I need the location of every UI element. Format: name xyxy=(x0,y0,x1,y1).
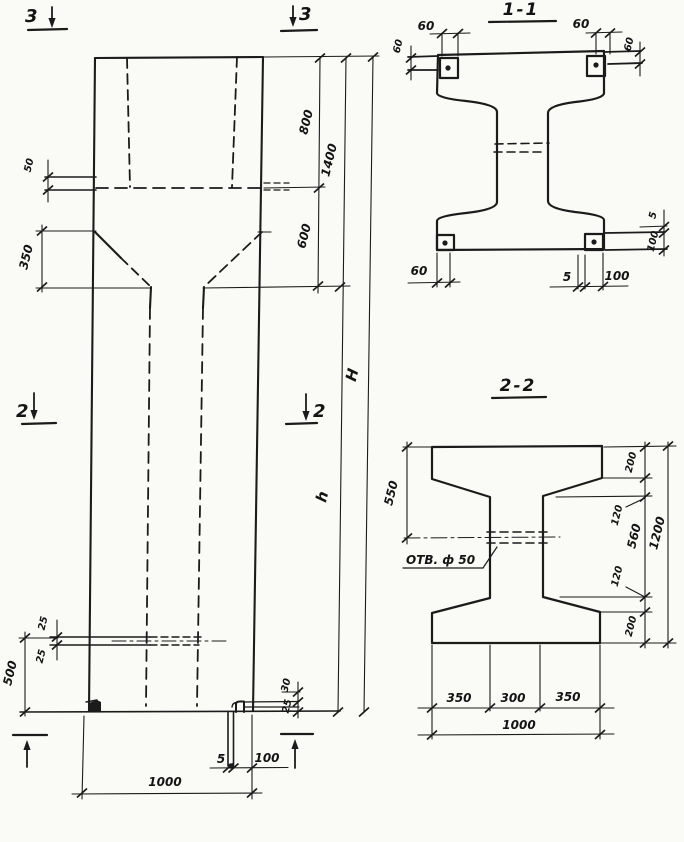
section-1-1-outline xyxy=(437,51,604,250)
dim-taper-label: 350 xyxy=(16,243,36,271)
dim-60-left-label: 60 xyxy=(392,38,406,54)
hole-label: ОТВ. ф 50 xyxy=(406,553,475,567)
hidden-web-lines xyxy=(96,57,289,706)
dim-25-upper-label: 25 xyxy=(37,615,51,631)
marker-3-left: 3 xyxy=(25,6,38,27)
dim-60-bl-label: 60 xyxy=(411,264,428,278)
dim-120-top-label: 120 xyxy=(610,504,626,527)
drawing-sheet: 50 350 800 600 1400 H h 25 25 500 30 25 … xyxy=(0,0,684,842)
dim-5-label: 5 xyxy=(217,752,225,766)
dim-notch-30-label: 30 xyxy=(280,677,294,693)
dim-550-label: 550 xyxy=(381,479,401,507)
dim-60-tr-label: 60 xyxy=(573,17,590,31)
dim-600-label: 600 xyxy=(294,222,314,250)
section-1-1-dim-lines xyxy=(408,32,667,290)
dim-1200-label: 1200 xyxy=(646,515,668,551)
dim-25-lower-label: 25 xyxy=(35,648,49,664)
dim-notch-25-label: 25 xyxy=(281,698,295,714)
dim-200-top-label: 200 xyxy=(624,451,640,474)
dim-120-bottom-label: 120 xyxy=(610,565,626,588)
marker-2-left: 2 xyxy=(16,401,29,422)
dim-200-bottom-label: 200 xyxy=(624,615,640,638)
embedded-plates xyxy=(437,56,605,250)
column-outline xyxy=(89,57,263,711)
section-2-2-underline xyxy=(492,397,546,398)
dim-H-label: H xyxy=(342,366,363,383)
hole-callout: ОТВ. ф 50 xyxy=(403,547,497,568)
section-2-2: 2-2 ОТВ. ф 50 xyxy=(381,376,676,740)
dim-350-right-label: 350 xyxy=(555,690,580,704)
hole-50 xyxy=(404,532,560,543)
dim-560-label: 560 xyxy=(624,522,644,550)
section-1-1: 1-1 xyxy=(392,0,669,292)
web-hole-dash xyxy=(495,143,549,144)
dim-5-right-label: 5 xyxy=(647,211,659,220)
dim-300-label: 300 xyxy=(500,691,525,705)
dim-500-label: 500 xyxy=(0,659,20,687)
marker-3-right: 3 xyxy=(299,4,312,25)
dim-350-left-label: 350 xyxy=(446,691,471,705)
section-1-1-title: 1-1 xyxy=(503,0,540,20)
dim-800-label: 800 xyxy=(296,108,316,136)
dim-1400-label: 1400 xyxy=(318,142,340,178)
base-hole xyxy=(50,637,228,645)
section-markers: 3 3 2 2 xyxy=(13,4,326,768)
section-2-2-dim-lines xyxy=(403,442,676,739)
section-1-1-underline xyxy=(489,21,556,22)
dim-h-label: h xyxy=(312,489,332,504)
section-2-2-outline xyxy=(432,446,602,643)
dim-100-label: 100 xyxy=(254,751,279,765)
anchor-dots xyxy=(442,62,598,245)
marker-2-right: 2 xyxy=(313,401,326,422)
dim-60-tl-label: 60 xyxy=(418,19,435,33)
dim-1000-label: 1000 xyxy=(148,775,181,789)
elevation-view: 50 350 800 600 1400 H h 25 25 500 30 25 … xyxy=(0,4,379,799)
dim-1000-bottom-label: 1000 xyxy=(502,718,535,732)
protruding-plates xyxy=(408,51,667,250)
section-2-2-title: 2-2 xyxy=(500,376,537,396)
dim-100-bottom-label: 100 xyxy=(604,269,629,283)
ledge-plate xyxy=(45,177,96,190)
dim-60-right-label: 60 xyxy=(623,36,637,52)
dim-5-bottom-label: 5 xyxy=(563,270,571,284)
dim-ledge-label: 50 xyxy=(23,157,37,173)
technical-drawing: 50 350 800 600 1400 H h 25 25 500 30 25 … xyxy=(0,0,684,842)
